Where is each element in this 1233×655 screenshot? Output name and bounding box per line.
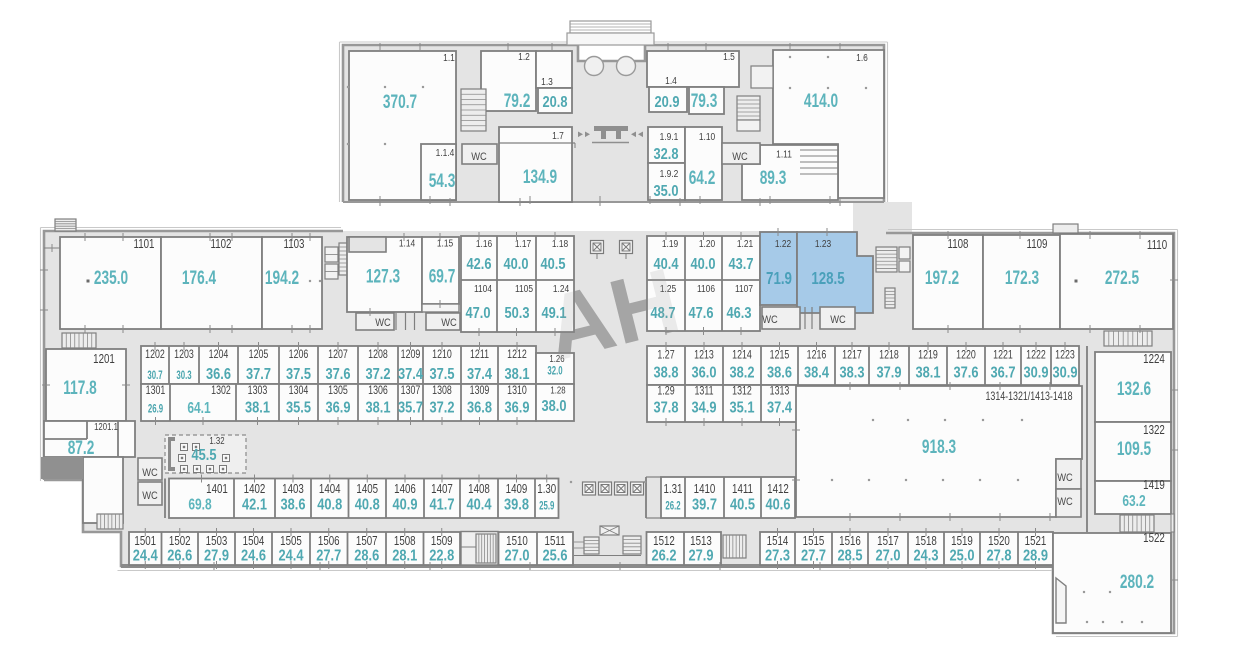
svg-text:38.8: 38.8	[654, 363, 679, 380]
svg-text:1312: 1312	[732, 386, 752, 398]
svg-text:25.6: 25.6	[543, 546, 568, 563]
svg-text:370.7: 370.7	[383, 91, 417, 113]
svg-text:1203: 1203	[174, 349, 194, 361]
svg-text:1.32: 1.32	[209, 435, 224, 446]
svg-text:1106: 1106	[697, 283, 715, 295]
svg-text:36.6: 36.6	[206, 365, 231, 382]
svg-text:1404: 1404	[319, 483, 341, 496]
svg-text:134.9: 134.9	[523, 166, 557, 188]
svg-text:26.2: 26.2	[665, 500, 681, 513]
svg-text:30.3: 30.3	[176, 370, 192, 383]
svg-text:1411: 1411	[732, 483, 753, 496]
svg-text:30.7: 30.7	[147, 370, 163, 383]
svg-text:50.3: 50.3	[505, 304, 530, 321]
svg-text:1210: 1210	[432, 349, 452, 361]
svg-text:1219: 1219	[918, 350, 938, 362]
svg-text:45.5: 45.5	[192, 446, 217, 463]
svg-text:37.4: 37.4	[398, 365, 423, 382]
svg-text:1110: 1110	[1147, 239, 1167, 252]
svg-text:1403: 1403	[282, 483, 304, 496]
svg-text:43.7: 43.7	[729, 255, 754, 272]
svg-text:1.19: 1.19	[662, 238, 678, 250]
svg-text:414.0: 414.0	[804, 90, 838, 112]
svg-text:37.9: 37.9	[877, 363, 902, 380]
svg-text:69.7: 69.7	[429, 265, 456, 287]
svg-text:27.9: 27.9	[689, 546, 714, 563]
svg-text:38.1: 38.1	[245, 398, 270, 415]
svg-text:36.9: 36.9	[326, 398, 351, 415]
svg-text:1309: 1309	[470, 385, 490, 397]
svg-text:1408: 1408	[468, 483, 490, 496]
svg-text:1201.1: 1201.1	[94, 421, 118, 432]
svg-text:1214: 1214	[732, 350, 752, 362]
svg-text:25.9: 25.9	[539, 500, 555, 513]
svg-text:1.4: 1.4	[665, 75, 677, 87]
svg-text:1207: 1207	[328, 349, 348, 361]
svg-text:109.5: 109.5	[1117, 438, 1151, 460]
svg-text:1.18: 1.18	[552, 238, 568, 250]
svg-text:1314-1321/1413-1418: 1314-1321/1413-1418	[985, 391, 1072, 403]
svg-text:1.22: 1.22	[775, 238, 791, 250]
svg-text:1.14: 1.14	[399, 238, 415, 250]
svg-text:63.2: 63.2	[1122, 491, 1145, 509]
svg-text:176.4: 176.4	[182, 267, 217, 289]
svg-text:1224: 1224	[1143, 353, 1165, 366]
svg-text:64.2: 64.2	[689, 167, 716, 189]
svg-text:54.3: 54.3	[429, 170, 456, 192]
svg-text:1.11: 1.11	[776, 149, 792, 161]
svg-text:172.3: 172.3	[1005, 267, 1039, 289]
svg-text:79.2: 79.2	[504, 90, 531, 112]
svg-text:34.9: 34.9	[692, 398, 717, 415]
svg-text:1201: 1201	[93, 353, 115, 366]
svg-text:40.4: 40.4	[467, 495, 492, 512]
svg-text:128.5: 128.5	[811, 269, 844, 288]
svg-text:280.2: 280.2	[1120, 571, 1154, 593]
svg-text:WC: WC	[142, 467, 158, 479]
svg-text:1108: 1108	[948, 238, 969, 251]
svg-text:35.1: 35.1	[730, 398, 755, 415]
svg-text:37.5: 37.5	[430, 365, 455, 382]
svg-text:1218: 1218	[879, 350, 899, 362]
svg-text:35.0: 35.0	[654, 182, 679, 199]
svg-text:39.7: 39.7	[692, 495, 717, 512]
svg-text:1304: 1304	[289, 385, 309, 397]
svg-text:WC: WC	[732, 151, 748, 163]
svg-text:1405: 1405	[356, 483, 378, 496]
svg-text:38.1: 38.1	[916, 363, 941, 380]
svg-text:1311: 1311	[694, 386, 713, 398]
svg-text:89.3: 89.3	[760, 167, 787, 189]
svg-text:1409: 1409	[506, 483, 528, 496]
svg-text:1.23: 1.23	[815, 238, 831, 250]
svg-text:1308: 1308	[432, 385, 452, 397]
svg-text:40.0: 40.0	[504, 255, 529, 272]
svg-text:1.1: 1.1	[443, 52, 455, 64]
svg-text:1.20: 1.20	[699, 238, 715, 250]
svg-text:1109: 1109	[1027, 238, 1048, 251]
svg-text:1216: 1216	[807, 350, 827, 362]
svg-text:32.8: 32.8	[654, 145, 679, 162]
svg-text:1212: 1212	[507, 349, 527, 361]
svg-text:1.10: 1.10	[699, 131, 715, 143]
svg-text:WC: WC	[762, 314, 778, 326]
svg-text:41.7: 41.7	[430, 495, 455, 512]
svg-text:WC: WC	[830, 314, 846, 326]
svg-text:30.9: 30.9	[1024, 363, 1049, 380]
svg-text:20.9: 20.9	[655, 93, 680, 110]
svg-text:38.2: 38.2	[730, 363, 755, 380]
svg-text:26.2: 26.2	[652, 546, 677, 563]
svg-text:1202: 1202	[145, 349, 165, 361]
svg-text:1206: 1206	[289, 349, 309, 361]
svg-text:918.3: 918.3	[922, 436, 956, 458]
svg-text:WC: WC	[142, 490, 158, 502]
svg-text:27.0: 27.0	[505, 546, 530, 563]
svg-text:1.9.1: 1.9.1	[660, 131, 679, 143]
svg-text:1313: 1313	[770, 386, 790, 398]
svg-text:64.1: 64.1	[187, 398, 210, 416]
svg-text:197.2: 197.2	[925, 267, 959, 289]
svg-text:37.6: 37.6	[326, 365, 351, 382]
svg-text:1.9.2: 1.9.2	[660, 168, 679, 180]
svg-text:1310: 1310	[507, 385, 527, 397]
svg-text:35.5: 35.5	[286, 398, 311, 415]
svg-text:1.7: 1.7	[552, 130, 564, 142]
svg-text:1205: 1205	[249, 349, 269, 361]
svg-text:69.8: 69.8	[188, 495, 211, 513]
svg-text:1.21: 1.21	[737, 238, 753, 250]
svg-text:37.7: 37.7	[246, 365, 271, 382]
svg-text:37.5: 37.5	[286, 365, 311, 382]
svg-text:1407: 1407	[431, 483, 453, 496]
svg-text:36.8: 36.8	[467, 398, 492, 415]
svg-text:1105: 1105	[515, 283, 533, 295]
svg-text:1204: 1204	[209, 349, 229, 361]
svg-text:1.6: 1.6	[856, 52, 868, 64]
svg-text:1522: 1522	[1143, 532, 1165, 545]
svg-text:71.9: 71.9	[766, 269, 792, 288]
svg-text:37.8: 37.8	[654, 398, 679, 415]
svg-text:37.2: 37.2	[430, 398, 455, 415]
svg-text:WC: WC	[471, 151, 487, 163]
svg-text:42.1: 42.1	[242, 495, 267, 512]
svg-text:194.2: 194.2	[265, 267, 299, 289]
svg-text:38.3: 38.3	[840, 363, 865, 380]
svg-text:1.1.4: 1.1.4	[436, 147, 455, 159]
svg-text:1406: 1406	[394, 483, 416, 496]
svg-text:40.5: 40.5	[730, 495, 755, 512]
svg-text:WC: WC	[1057, 496, 1073, 508]
svg-text:235.0: 235.0	[94, 267, 128, 289]
svg-text:127.3: 127.3	[366, 265, 400, 287]
svg-text:WC: WC	[441, 317, 457, 329]
svg-text:40.8: 40.8	[317, 495, 342, 512]
svg-text:40.8: 40.8	[355, 495, 380, 512]
svg-text:1303: 1303	[248, 385, 268, 397]
svg-text:1419: 1419	[1143, 479, 1165, 492]
svg-text:1213: 1213	[694, 350, 714, 362]
svg-text:37.4: 37.4	[767, 398, 792, 415]
svg-text:1.29: 1.29	[657, 386, 674, 398]
svg-text:37.2: 37.2	[366, 365, 391, 382]
svg-text:1402: 1402	[244, 483, 266, 496]
svg-text:1221: 1221	[993, 350, 1013, 362]
svg-text:38.6: 38.6	[281, 495, 306, 512]
svg-text:1.30: 1.30	[537, 483, 556, 496]
svg-text:WC: WC	[375, 317, 391, 329]
svg-text:1307: 1307	[401, 385, 421, 397]
svg-text:1223: 1223	[1055, 350, 1075, 362]
svg-text:40.6: 40.6	[766, 495, 791, 512]
svg-text:1.3: 1.3	[541, 76, 553, 88]
svg-text:38.1: 38.1	[366, 398, 391, 415]
svg-text:40.9: 40.9	[393, 495, 418, 512]
svg-text:38.4: 38.4	[804, 363, 829, 380]
svg-text:38.0: 38.0	[542, 397, 567, 414]
svg-text:40.5: 40.5	[541, 255, 566, 272]
svg-text:42.6: 42.6	[467, 255, 492, 272]
svg-text:47.6: 47.6	[689, 304, 714, 321]
svg-text:1305: 1305	[328, 385, 348, 397]
svg-text:1301: 1301	[146, 385, 166, 397]
svg-text:1.5: 1.5	[723, 51, 735, 63]
svg-text:47.0: 47.0	[466, 304, 491, 321]
svg-text:1215: 1215	[770, 350, 790, 362]
svg-text:1302: 1302	[211, 385, 231, 397]
svg-text:1101: 1101	[134, 238, 155, 251]
svg-text:1208: 1208	[368, 349, 388, 361]
svg-text:1102: 1102	[211, 238, 232, 251]
svg-text:1103: 1103	[284, 238, 305, 251]
svg-text:39.8: 39.8	[504, 495, 529, 512]
svg-text:1306: 1306	[368, 385, 388, 397]
svg-text:79.3: 79.3	[691, 90, 718, 112]
svg-text:36.7: 36.7	[991, 363, 1016, 380]
svg-text:20.8: 20.8	[543, 93, 568, 110]
svg-text:1211: 1211	[470, 349, 489, 361]
svg-text:26.9: 26.9	[148, 403, 164, 416]
svg-text:38.6: 38.6	[767, 363, 792, 380]
svg-text:1222: 1222	[1026, 350, 1046, 362]
svg-text:117.8: 117.8	[63, 377, 96, 399]
svg-text:1.28: 1.28	[550, 385, 565, 396]
svg-text:1.15: 1.15	[437, 238, 453, 250]
svg-text:1.16: 1.16	[476, 238, 492, 250]
svg-text:35.7: 35.7	[398, 398, 423, 415]
svg-text:37.6: 37.6	[954, 363, 979, 380]
svg-text:1.2: 1.2	[518, 51, 530, 63]
svg-text:1209: 1209	[401, 349, 421, 361]
svg-text:1217: 1217	[842, 350, 862, 362]
svg-text:1.31: 1.31	[664, 483, 683, 496]
svg-text:1322: 1322	[1143, 424, 1165, 437]
svg-text:30.9: 30.9	[1053, 363, 1078, 380]
svg-text:40.0: 40.0	[691, 255, 716, 272]
svg-text:46.3: 46.3	[727, 304, 752, 321]
svg-text:1107: 1107	[735, 283, 753, 295]
svg-text:36.9: 36.9	[505, 398, 530, 415]
svg-text:37.4: 37.4	[467, 365, 492, 382]
svg-text:38.1: 38.1	[505, 365, 530, 382]
svg-text:1410: 1410	[694, 483, 716, 496]
svg-text:272.5: 272.5	[1105, 267, 1139, 289]
svg-text:1220: 1220	[956, 350, 976, 362]
svg-text:36.0: 36.0	[692, 363, 717, 380]
svg-text:1412: 1412	[767, 483, 789, 496]
svg-text:WC: WC	[1057, 472, 1073, 484]
svg-text:132.6: 132.6	[1117, 378, 1151, 400]
svg-text:1104: 1104	[474, 283, 492, 295]
svg-text:87.2: 87.2	[68, 437, 95, 459]
svg-text:1.17: 1.17	[515, 238, 531, 250]
